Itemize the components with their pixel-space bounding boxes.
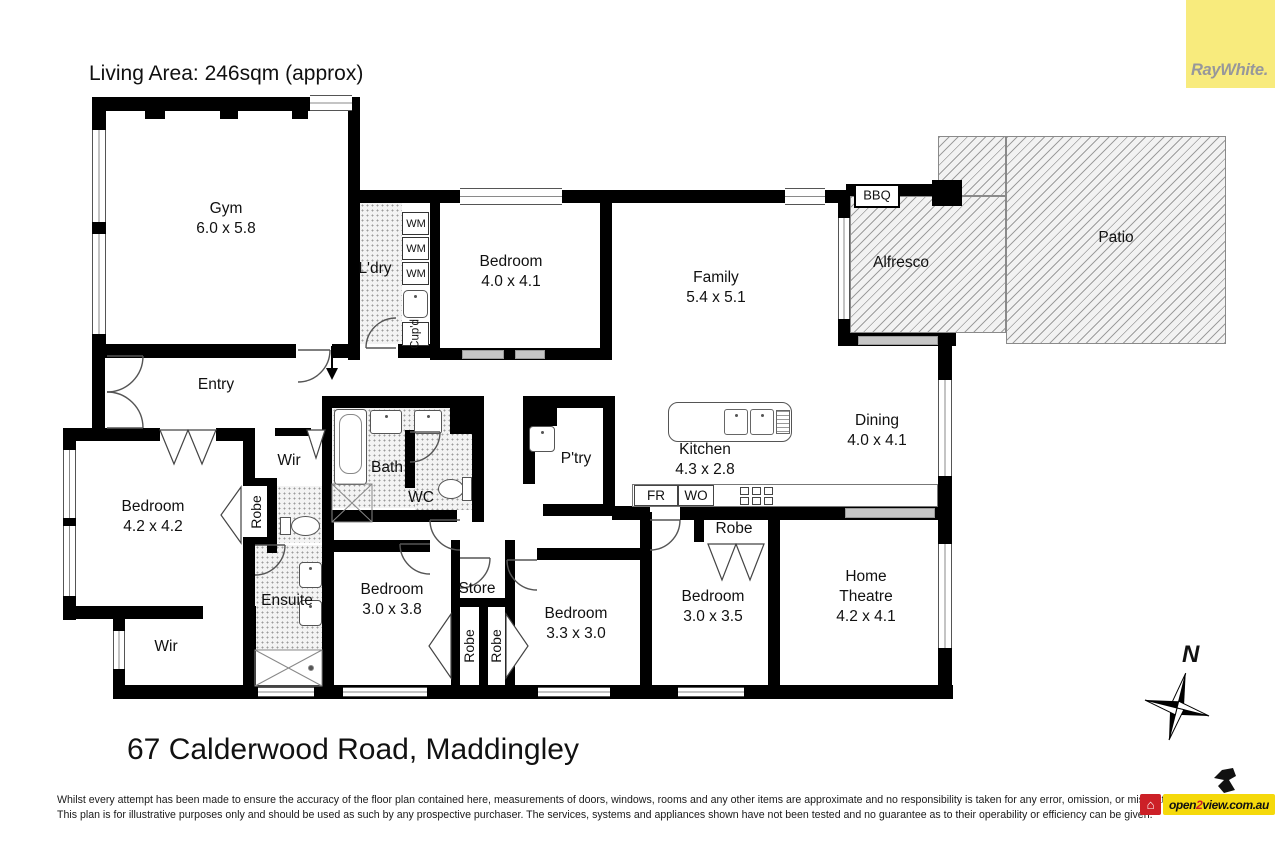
cooktop-burner-4: [740, 497, 749, 505]
room-label-wir-bottom: Wir: [154, 637, 177, 657]
room-label-kitchen: Kitchen4.3 x 2.8: [675, 440, 734, 480]
room-label-alfresco: Alfresco: [873, 253, 929, 273]
door-opening: [160, 428, 216, 441]
room-label-bedroom3: Bedroom3.3 x 3.0: [545, 604, 608, 644]
compass-north-label: N: [1182, 641, 1199, 669]
cooktop-burner-6: [764, 497, 773, 505]
room-label-bedroom4: Bedroom3.0 x 3.5: [682, 587, 745, 627]
compass-rose: [1137, 665, 1218, 748]
robe2-door-wing: [429, 614, 451, 678]
label-bbq: BBQ: [863, 188, 890, 205]
wall-segment: [430, 190, 440, 360]
wall-segment: [92, 344, 105, 441]
wall-segment: [523, 396, 557, 426]
ensuite-toilet-bowl: [291, 516, 320, 536]
room-label-pantry: P'try: [561, 449, 592, 469]
room-label-bedroom2: Bedroom3.0 x 3.8: [361, 580, 424, 620]
room-label-gym: Gym6.0 x 5.8: [196, 199, 255, 239]
room-label-ensuite: Ensuite: [261, 591, 313, 611]
bath-vanity-1: [370, 410, 402, 434]
wall-segment: [472, 396, 484, 522]
room-label-bath: Bath: [371, 458, 403, 478]
house-icon: ⌂: [1140, 794, 1161, 815]
ensuite-toilet-tank: [280, 517, 291, 535]
open2view-wordmark: open2view.com.au: [1163, 794, 1275, 815]
robe4-door-wing-1: [708, 544, 736, 580]
window: [310, 95, 352, 111]
window: [838, 218, 850, 319]
wall-segment: [348, 190, 850, 203]
room-label-dining: Dining4.0 x 4.1: [847, 411, 906, 451]
sliding-panel: [858, 336, 938, 345]
photographer-icon: [1214, 768, 1236, 793]
wall-segment: [243, 545, 255, 608]
disclaimer-line-2: This plan is for illustrative purposes o…: [57, 809, 1153, 821]
window: [92, 234, 106, 334]
master-robe-door-wing: [221, 487, 241, 543]
pantry-sink: [529, 426, 555, 452]
room-label-patio: Patio: [1098, 228, 1133, 248]
raywhite-logo: RayWhite.: [1186, 0, 1275, 88]
cooktop-burner-3: [764, 487, 773, 495]
wall-segment: [322, 396, 332, 522]
window: [92, 130, 106, 222]
cooktop-burner-1: [740, 487, 749, 495]
wall-segment: [405, 430, 415, 488]
room-label-wir-top: Wir: [277, 451, 300, 471]
wall-segment: [92, 222, 106, 234]
window: [258, 687, 314, 697]
wall-segment: [292, 111, 308, 119]
cooktop-burner-2: [752, 487, 761, 495]
room-label-home-theatre: HomeTheatre4.2 x 4.1: [836, 567, 895, 627]
wall-segment: [451, 598, 515, 607]
floorplan-canvas: Gym6.0 x 5.8 L'dry WM WM WM Cup'd Bedroo…: [0, 0, 1284, 856]
wall-segment: [505, 540, 515, 697]
wall-segment: [145, 111, 165, 119]
address-text: 67 Calderwood Road, Maddingley: [127, 733, 579, 767]
wc-toilet-tank: [462, 477, 472, 501]
door-opening: [296, 344, 332, 358]
wall-segment: [243, 537, 277, 545]
living-area-text: Living Area: 246sqm (approx): [89, 62, 363, 86]
wall-segment: [932, 180, 962, 206]
label-wm-1: WM: [406, 217, 426, 231]
wall-segment: [322, 510, 457, 522]
bathtub-inner: [339, 414, 362, 474]
label-master-robe: Robe: [247, 495, 265, 528]
raywhite-logo-text: RayWhite.: [1191, 61, 1268, 80]
wall-segment: [63, 428, 245, 441]
wall-segment: [63, 518, 76, 526]
wall-segment: [694, 506, 704, 542]
wall-segment: [348, 97, 360, 360]
label-wall-oven: WO: [684, 487, 707, 505]
wall-segment: [768, 506, 780, 697]
window: [343, 687, 427, 697]
label-robe4: Robe: [715, 519, 752, 539]
window: [938, 544, 952, 648]
room-label-store: Store: [458, 579, 495, 599]
window: [460, 188, 562, 205]
door-opening: [203, 606, 243, 619]
wall-segment: [543, 504, 615, 516]
room-label-wc: WC: [408, 488, 434, 508]
island-drainboard: [776, 410, 790, 434]
front-door-leaf-bottom: [107, 392, 143, 428]
sliding-panel: [515, 350, 545, 359]
sliding-panel: [462, 350, 504, 359]
window: [938, 380, 952, 476]
island-sink-basin-2: [750, 409, 774, 435]
wall-segment: [537, 548, 643, 560]
window: [678, 687, 744, 697]
ensuite-shower: [255, 650, 322, 686]
wall-segment: [600, 190, 612, 360]
label-robe2: Robe: [460, 629, 478, 662]
laundry-tub: [403, 290, 428, 318]
wc-toilet-bowl: [438, 479, 464, 499]
window: [538, 687, 610, 697]
label-wm-3: WM: [406, 267, 426, 281]
room-label-bedroom1: Bedroom4.0 x 4.1: [480, 252, 543, 292]
ensuite-basin-1: [299, 562, 322, 588]
window: [63, 526, 76, 596]
bath-vanity-2: [414, 410, 442, 434]
room-label-family: Family5.4 x 5.1: [686, 268, 745, 308]
sliding-panel: [845, 508, 935, 518]
wall-segment: [220, 111, 238, 119]
label-cupboard: Cup'd: [409, 319, 424, 349]
label-fridge: FR: [647, 487, 665, 505]
label-wm-2: WM: [406, 242, 426, 256]
wall-segment: [640, 512, 652, 697]
open2view-logo: ⌂ open2view.com.au: [1140, 794, 1275, 815]
wall-segment: [113, 685, 953, 699]
wall-segment: [63, 606, 208, 619]
wall-segment: [330, 540, 430, 552]
label-robe3: Robe: [487, 629, 505, 662]
disclaimer-line-1: Whilst every attempt has been made to en…: [57, 794, 1197, 806]
room-label-laundry: L'dry: [358, 259, 391, 279]
wall-segment: [275, 428, 311, 436]
room-label-entry: Entry: [198, 375, 234, 395]
window: [785, 188, 825, 205]
room-label-master-bedroom: Bedroom4.2 x 4.2: [122, 497, 185, 537]
island-sink-basin-1: [724, 409, 748, 435]
bedroom4-door: [650, 520, 680, 550]
cooktop-burner-5: [752, 497, 761, 505]
wall-segment: [451, 540, 460, 697]
window: [113, 631, 125, 669]
robe4-door-wing-2: [736, 544, 764, 580]
front-door-leaf-top: [107, 356, 143, 392]
wall-segment: [603, 396, 615, 516]
window: [63, 450, 76, 518]
